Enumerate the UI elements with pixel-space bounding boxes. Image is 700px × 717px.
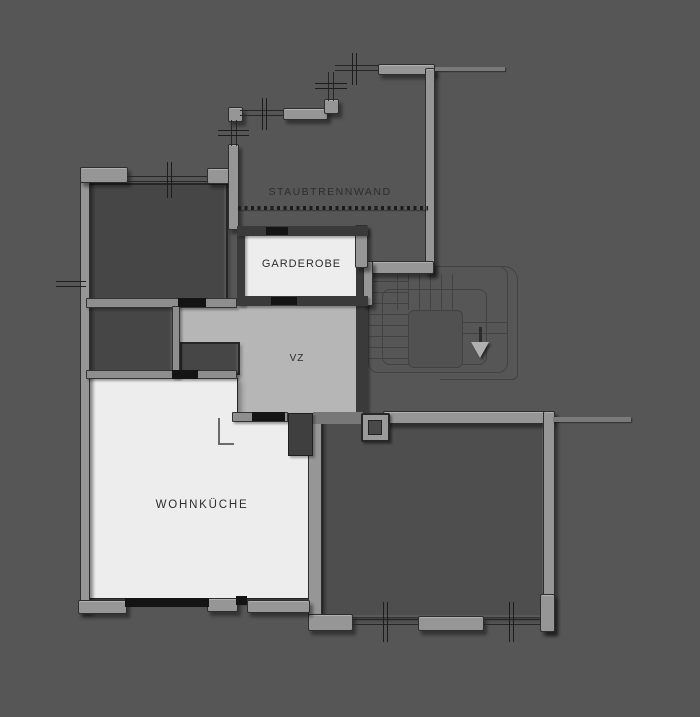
window-tick: [352, 53, 357, 85]
wall-kitchen-top: [86, 370, 237, 379]
window-tick: [509, 602, 514, 642]
stair-tread: [368, 325, 408, 326]
room-lower-left: [86, 306, 174, 374]
window-tick: [262, 98, 267, 130]
window-tick: [315, 83, 347, 89]
stair-tread: [441, 274, 442, 310]
wall-left: [80, 167, 90, 612]
label-vz: VZ: [277, 353, 317, 364]
stair-tread: [368, 336, 408, 337]
wall-segment: [283, 108, 328, 120]
threshold-mark: [125, 598, 209, 607]
stair-tread: [452, 274, 453, 310]
door-mark: [252, 412, 285, 421]
stair-tread: [368, 358, 408, 359]
wall-stair-top: [363, 261, 434, 274]
door-mark: [266, 227, 288, 235]
door-frame-opening: [368, 420, 382, 435]
window-tick: [383, 602, 388, 642]
stair-tread: [419, 274, 420, 310]
door-mark: [172, 370, 198, 379]
wall-right-upper: [425, 68, 435, 274]
stair-tread: [463, 322, 508, 323]
wall-kitchen-bottom: [247, 600, 310, 613]
room-wohnkueche-floor: [86, 377, 308, 598]
stair-tread: [368, 281, 408, 282]
wall-corner-block: [324, 99, 339, 114]
wall-divider: [86, 298, 237, 308]
wall-divider: [172, 306, 180, 378]
stair-tread: [368, 314, 408, 315]
wall-garderobe-bottom: [238, 296, 368, 306]
door-mark: [236, 596, 247, 605]
wall-bottom-right-corner: [540, 594, 555, 632]
stair-tread: [368, 292, 408, 293]
label-wohnkueche: WOHNKÜCHE: [122, 499, 282, 511]
wall-segment: [313, 412, 363, 424]
window-tick: [56, 281, 86, 287]
dust-partition-line: [238, 206, 428, 210]
wall-reference-line: [435, 67, 505, 71]
wall-kitchen-bottom: [78, 600, 127, 614]
wall-step-line: [218, 418, 220, 445]
wall-bottom-corner: [308, 614, 353, 631]
wall-step-line: [218, 443, 234, 445]
door-mark: [178, 298, 206, 307]
wall-garderobe-top: [237, 226, 368, 236]
stair-tread: [430, 274, 431, 310]
room-upper-left: [86, 183, 228, 302]
door-mark: [271, 297, 297, 305]
stair-tread: [463, 333, 508, 334]
stair-direction-arrow-icon: [471, 342, 489, 358]
room-wohnkueche: [86, 377, 308, 598]
label-garderobe: GARDEROBE: [243, 258, 360, 270]
window-tick: [218, 130, 249, 136]
wall-kitchen-bottom: [207, 598, 238, 612]
stair-landing: [408, 310, 463, 368]
pillar: [288, 413, 313, 456]
wall-reference-line: [553, 417, 631, 422]
stair-arrow-tail: [479, 327, 482, 343]
floor-plan: STAUBTRENNWAND GARDEROBE VZ WOHNKÜCHE: [0, 0, 700, 717]
stair-tread: [408, 274, 409, 310]
window-tick: [167, 162, 172, 198]
label-staubtrennwand: STAUBTRENNWAND: [230, 186, 430, 198]
wall-top-left-corner: [80, 167, 128, 183]
stair-tread: [368, 303, 408, 304]
stair-tread: [368, 347, 408, 348]
wall-bottom-segment: [418, 616, 484, 631]
room-right: [322, 422, 545, 618]
wall-right-room-top: [383, 411, 553, 424]
